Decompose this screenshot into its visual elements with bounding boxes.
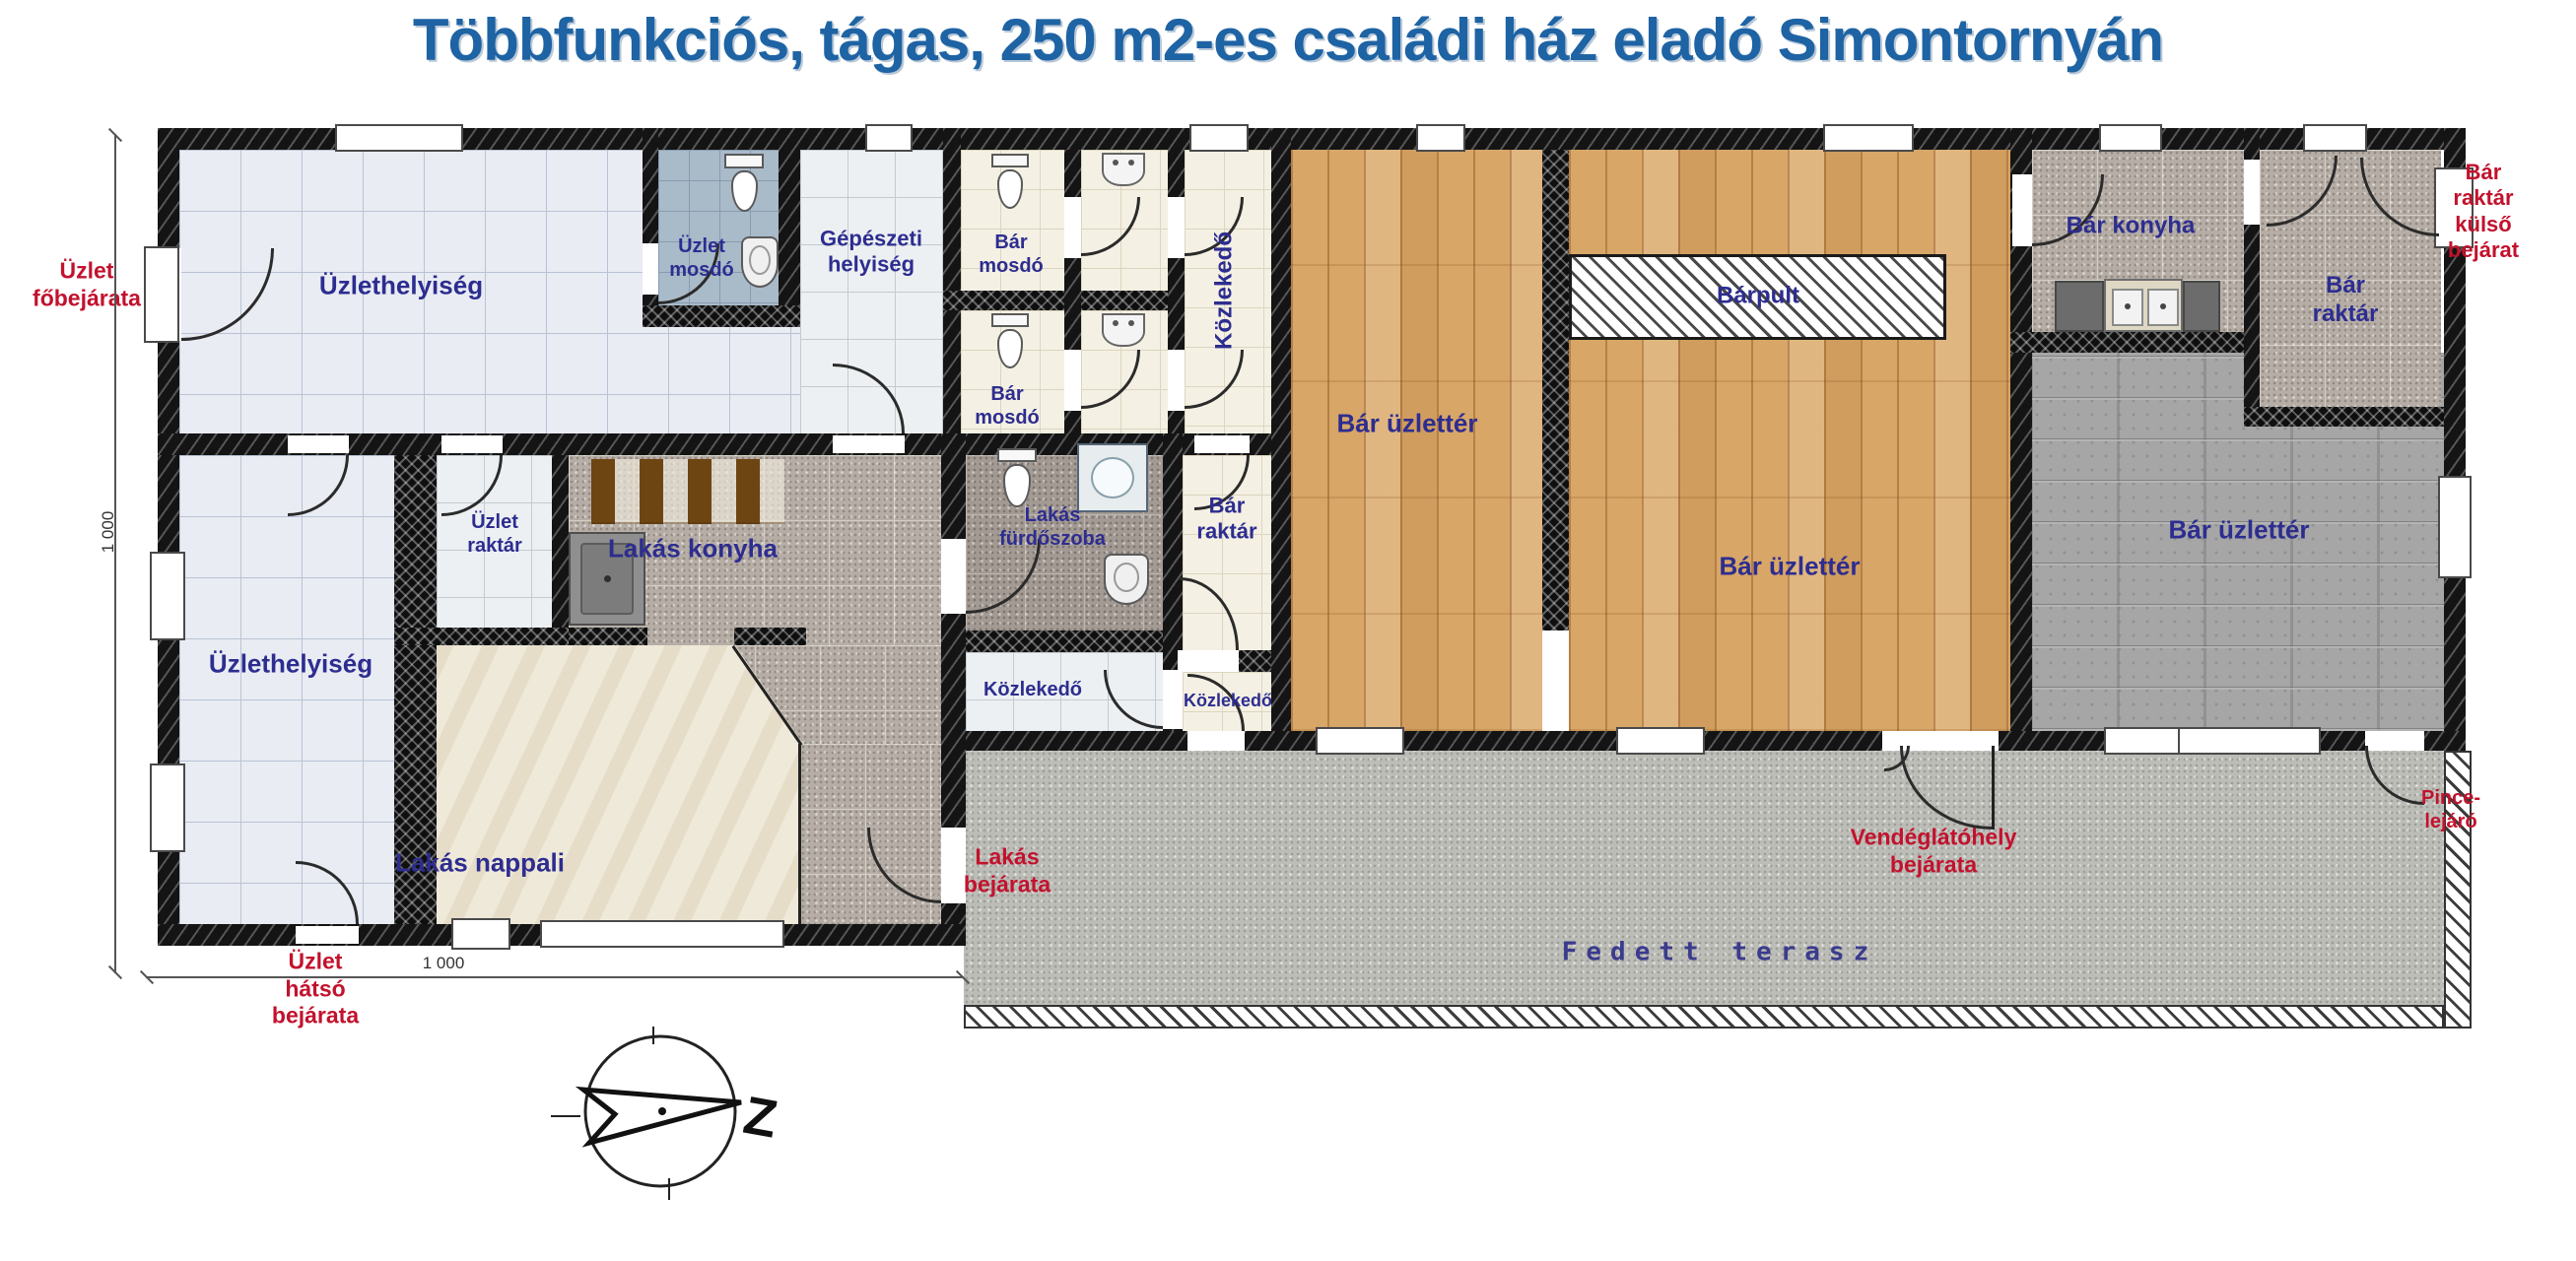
window-bottom-wood2 — [1616, 727, 1705, 755]
terrace-border-hatch — [964, 1005, 2444, 1029]
door-opening-konyha-raktar — [2244, 160, 2260, 225]
compass-north-letter: Z — [739, 1086, 781, 1150]
window-top-1 — [335, 124, 463, 152]
door-opening-sink2-kozlekedo — [1168, 350, 1185, 411]
toilet-icon — [997, 448, 1037, 462]
window-top-6 — [2099, 124, 2162, 152]
window-top-2 — [865, 124, 913, 152]
room-label-lakas-konyha: Lakás konyha — [608, 533, 778, 564]
floor-boundary-vertical — [798, 744, 801, 924]
wall-wood-divider — [1542, 150, 1569, 630]
dimension-line-vertical — [114, 134, 116, 973]
door-opening-raktar-kozep-also — [1178, 650, 1239, 672]
wall-bar-raktar-jobb-bottom — [2244, 407, 2444, 427]
wall-kozlekedo-wood — [1271, 128, 1291, 731]
room-label-bar-raktar-kozep: Bár raktár — [1196, 494, 1256, 546]
entrance-label-pince-lejaro: Pince- lejáró — [2421, 786, 2480, 833]
shower-icon — [1077, 443, 1148, 512]
door-opening-uzlet-hatso — [296, 926, 359, 944]
room-label-bar-konyha: Bár konyha — [2067, 213, 2196, 241]
knee-wall-left — [567, 628, 647, 645]
toilet-icon — [991, 313, 1029, 327]
floorplan-canvas: Többfunkciós, tágas, 250 m2-es családi h… — [0, 0, 2576, 1261]
door-opening-furdoszoba — [941, 539, 966, 614]
door-opening-uzlet-mosdo — [643, 243, 658, 295]
sink-basin-icon — [2112, 289, 2143, 326]
room-label-lakas-furdoszoba: Lakás fürdőszoba — [999, 503, 1106, 551]
floor-lakas-nappali — [437, 645, 800, 924]
counter-icon — [2055, 281, 2104, 332]
kitchen-cabinet-icon — [591, 459, 784, 524]
toilet-icon — [991, 154, 1029, 167]
counter-icon — [2183, 281, 2220, 332]
sink-icon — [1102, 153, 1145, 186]
dimension-label-horizontal: 1 000 — [423, 954, 465, 973]
sink-icon — [1102, 313, 1145, 347]
door-opening-lakas-bejarat — [941, 828, 966, 903]
window-bottom-right-1 — [2104, 727, 2183, 755]
window-bottom-left-1 — [451, 918, 510, 950]
wall-uzlet-mosdo-bottom — [643, 305, 800, 327]
sink-icon — [1104, 554, 1149, 605]
door-opening-sink1-kozlekedo — [1168, 197, 1185, 258]
room-label-bar-raktar-jobb: Bár raktár — [2313, 272, 2379, 329]
window-bottom-wood1 — [1316, 727, 1404, 755]
door-opening-raktar-kozep-felso — [1194, 435, 1250, 453]
door-opening-mosdo2-sink2 — [1064, 350, 1081, 411]
toilet-icon — [724, 154, 764, 168]
room-label-kozlekedo-felso: Közlekedő — [1211, 232, 1240, 350]
room-label-kozlekedo-bal: Közlekedő — [983, 678, 1082, 701]
room-label-uzlet-mosdo: Üzlet mosdó — [669, 234, 734, 282]
window-top-7 — [2303, 124, 2367, 152]
window-bottom-right-2 — [2178, 727, 2321, 755]
window-bottom-left-2 — [540, 920, 784, 948]
wall-gepeszeti-right — [943, 128, 961, 433]
compass-arrow — [583, 1090, 741, 1143]
room-label-bar-mosdo-2: Bár mosdó — [975, 382, 1040, 430]
knee-wall-right — [734, 628, 806, 645]
compass-icon: Z — [547, 1025, 833, 1217]
page-title: Többfunkciós, tágas, 250 m2-es családi h… — [0, 6, 2576, 74]
wall-uzlet-raktar-right — [552, 455, 569, 645]
room-label-uzlet-raktar: Üzlet raktár — [467, 510, 522, 558]
dimension-label-vertical: 1 000 — [99, 511, 118, 554]
wall-uzlet-mosdo-right — [779, 128, 800, 327]
window-left-1 — [150, 552, 185, 640]
room-label-fedett-terasz: Fedett terasz — [1562, 937, 1878, 967]
double-sink-icon — [2104, 279, 2183, 332]
room-label-lakas-nappali: Lakás nappali — [395, 847, 565, 878]
door-opening-kozlekedo-kozott — [1163, 670, 1183, 729]
sink-icon — [741, 236, 779, 288]
room-label-bar-uzletter-1: Bár üzlettér — [1336, 408, 1477, 438]
door-opening-mosdo1-sink1 — [1064, 197, 1081, 258]
room-label-bar-mosdo-1: Bár mosdó — [979, 231, 1044, 278]
room-label-uzlethelyiseg-1: Üzlethelyiség — [319, 270, 483, 300]
room-label-gepeszeti: Gépészeti helyiség — [820, 227, 922, 279]
wall-uzlet-mosdo-left — [643, 128, 658, 327]
compass-center-dot — [658, 1107, 666, 1115]
window-top-5 — [1823, 124, 1914, 152]
door-opening-gepeszeti — [833, 435, 905, 453]
wall-uzlet-raktar-bottom — [394, 628, 569, 645]
wall-bar-konyha-bottom — [2010, 332, 2260, 353]
sink-basin-icon — [2147, 289, 2179, 326]
entrance-label-uzlet-hatso: Üzlet hátsó bejárata — [272, 949, 359, 1030]
floor-uzlethelyiseg-2 — [179, 455, 394, 924]
room-label-bar-uzletter-3: Bár üzlettér — [2168, 514, 2309, 545]
room-label-bar-uzletter-2: Bár üzlettér — [1719, 551, 1860, 581]
door-opening-kozlekedo-terasz — [1187, 731, 1245, 751]
room-label-uzlethelyiseg-2: Üzlethelyiség — [209, 648, 373, 679]
floor-bar-uzletter-2 — [1569, 150, 2010, 731]
entrance-label-lakas-bejarata: Lakás bejárata — [964, 843, 1051, 897]
entrance-label-bar-raktar-kulso: Bár raktár külső bejárat — [2448, 160, 2519, 264]
door-opening-bar-konyha — [2012, 174, 2032, 246]
door-leaf-vendeglatohely — [1992, 746, 1995, 830]
door-opening-uzlet-raktar — [441, 435, 503, 453]
room-label-barpult: Bárpult — [1717, 283, 1799, 311]
window-top-4 — [1416, 124, 1465, 152]
door-opening-uzlethelyiseg2 — [288, 435, 349, 453]
floor-bar-uzletter-1 — [1291, 150, 1542, 731]
door-leaf-uzlet-fobejarat — [144, 246, 179, 343]
window-left-2 — [150, 763, 185, 852]
dimension-line-horizontal — [146, 976, 964, 978]
window-top-3 — [1189, 124, 1249, 152]
wall-furdoszoba-bottom — [966, 630, 1163, 652]
entrance-label-vendeglatohely: Vendéglátóhely bejárata — [1851, 824, 2017, 878]
entrance-label-uzlet-fobejarata: Üzlet főbejárata — [33, 257, 141, 311]
window-stone-right — [2438, 476, 2472, 578]
room-label-kozlekedo-jobb: Közlekedő — [1184, 691, 1272, 712]
